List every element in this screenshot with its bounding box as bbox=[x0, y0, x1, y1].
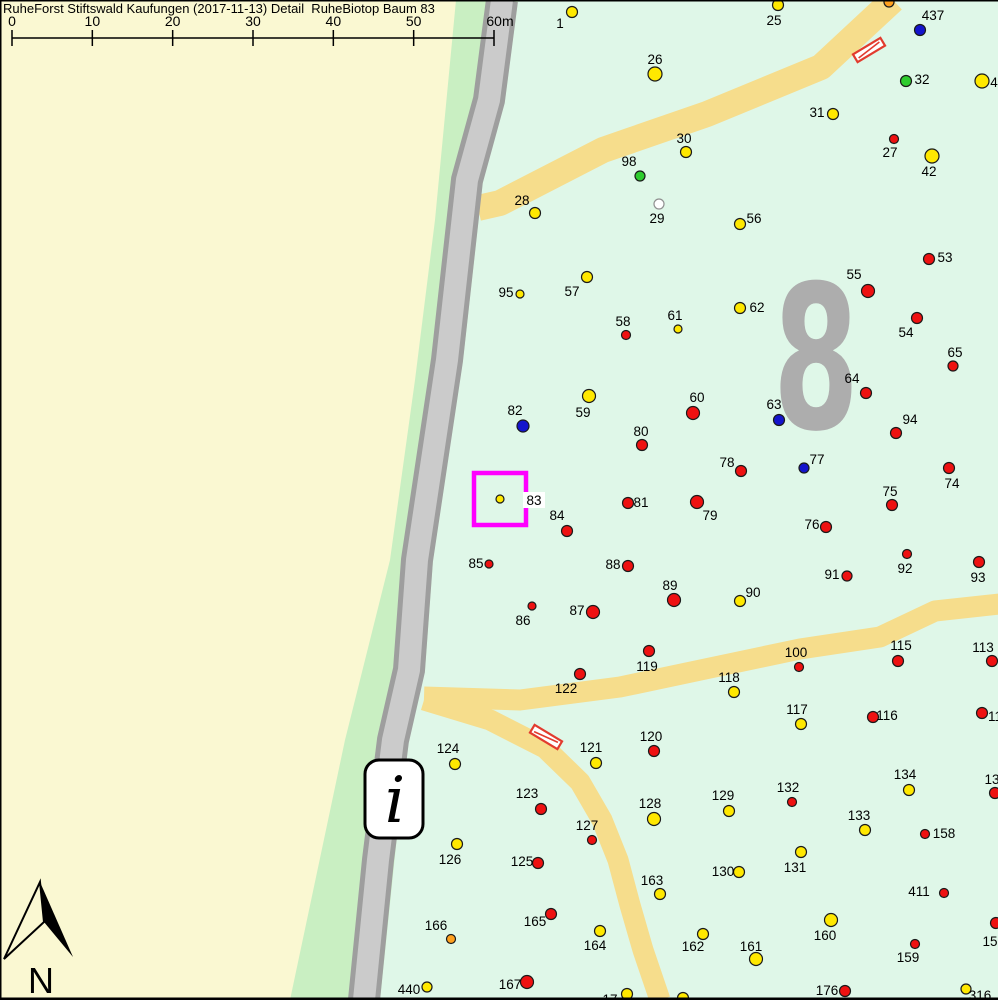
tree-dot bbox=[654, 199, 664, 209]
tree-label: 95 bbox=[498, 285, 513, 300]
tree-dot bbox=[485, 560, 493, 568]
tree-marker-176[interactable]: 176 bbox=[816, 983, 851, 998]
tree-dot bbox=[521, 976, 534, 989]
tree-label: 25 bbox=[766, 13, 781, 28]
tree-dot bbox=[567, 7, 578, 18]
tree-label: 88 bbox=[605, 557, 620, 572]
tree-label: 28 bbox=[514, 193, 529, 208]
tree-dot bbox=[862, 285, 875, 298]
tree-dot bbox=[735, 219, 746, 230]
tree-dot bbox=[901, 76, 912, 87]
tree-label: 60 bbox=[689, 390, 704, 405]
tree-label: 55 bbox=[846, 267, 861, 282]
tree-dot bbox=[796, 847, 807, 858]
tree-dot bbox=[582, 272, 593, 283]
tree-dot bbox=[828, 109, 839, 120]
tree-label: 80 bbox=[633, 424, 648, 439]
tree-dot bbox=[940, 889, 949, 898]
tree-dot bbox=[975, 74, 989, 88]
tree-dot bbox=[735, 596, 746, 607]
tree-label: 119 bbox=[636, 659, 658, 674]
tree-label: 83 bbox=[526, 493, 541, 508]
tree-label: 134 bbox=[894, 767, 917, 782]
tree-label: 126 bbox=[439, 852, 462, 867]
tree-dot bbox=[799, 463, 809, 473]
tree-marker-26[interactable]: 26 bbox=[647, 52, 662, 81]
tree-dot bbox=[861, 388, 872, 399]
tree-dot bbox=[447, 935, 456, 944]
tree-label: 167 bbox=[499, 977, 522, 992]
tree-dot bbox=[750, 953, 763, 966]
tree-label: 131 bbox=[784, 860, 807, 875]
tree-dot bbox=[674, 325, 682, 333]
tree-dot bbox=[528, 602, 536, 610]
north-label: N bbox=[28, 960, 54, 1000]
tree-label: 117 bbox=[786, 702, 808, 717]
tree-label: 63 bbox=[766, 397, 781, 412]
tree-label: 118 bbox=[718, 670, 740, 685]
tree-label: 13 bbox=[984, 772, 999, 787]
tree-dot bbox=[623, 498, 634, 509]
tree-dot bbox=[796, 719, 807, 730]
tree-dot bbox=[691, 496, 704, 509]
tree-label: 158 bbox=[933, 826, 956, 841]
tree-dot bbox=[648, 813, 661, 826]
tree-label: 74 bbox=[944, 476, 960, 491]
tree-label: 161 bbox=[740, 939, 763, 954]
tree-dot bbox=[825, 914, 838, 927]
tree-label: 122 bbox=[555, 681, 578, 696]
tree-label: 4 bbox=[990, 75, 998, 90]
tree-label: 1 bbox=[556, 16, 564, 31]
tree-dot bbox=[587, 606, 600, 619]
tree-label: 100 bbox=[785, 645, 808, 660]
tree-label: 62 bbox=[749, 300, 764, 315]
tree-label: 26 bbox=[647, 52, 662, 67]
tree-label: 124 bbox=[437, 741, 460, 756]
tree-marker-62[interactable]: 62 bbox=[735, 300, 765, 315]
tree-label: 15 bbox=[982, 934, 997, 949]
tree-dot bbox=[649, 746, 660, 757]
tree-marker-130[interactable]: 130 bbox=[712, 864, 745, 879]
tree-label: 64 bbox=[844, 371, 860, 386]
tree-dot bbox=[452, 839, 463, 850]
map-canvas[interactable]: 8 12543726324312730429828295653579555626… bbox=[0, 0, 1000, 1000]
info-icon: i bbox=[385, 764, 405, 838]
tree-label: 77 bbox=[809, 452, 824, 467]
tree-dot bbox=[774, 415, 785, 426]
tree-label: 61 bbox=[667, 308, 682, 323]
tree-label: 84 bbox=[549, 508, 565, 523]
tree-label: 76 bbox=[804, 517, 819, 532]
tree-dot bbox=[735, 303, 746, 314]
tree-label: 94 bbox=[902, 412, 918, 427]
tree-label: 132 bbox=[777, 780, 800, 795]
tree-label: 113 bbox=[972, 640, 994, 655]
tree-dot bbox=[562, 526, 573, 537]
tree-label: 115 bbox=[890, 638, 912, 653]
tree-label: 79 bbox=[702, 508, 717, 523]
tree-label: 82 bbox=[507, 403, 522, 418]
tree-label: 91 bbox=[824, 567, 839, 582]
tree-dot bbox=[736, 466, 747, 477]
tree-dot bbox=[681, 147, 692, 158]
tree-dot bbox=[987, 656, 998, 667]
tree-label: 90 bbox=[745, 585, 760, 600]
tree-dot bbox=[536, 804, 547, 815]
scale-tick-label: 60m bbox=[486, 13, 513, 29]
tree-dot bbox=[915, 25, 926, 36]
tree-dot bbox=[842, 571, 852, 581]
tree-label: 127 bbox=[576, 818, 599, 833]
tree-label: 27 bbox=[882, 145, 897, 160]
tree-dot bbox=[795, 663, 804, 672]
tree-dot bbox=[583, 390, 596, 403]
tree-dot bbox=[903, 550, 912, 559]
tree-dot bbox=[648, 67, 662, 81]
tree-dot bbox=[623, 561, 634, 572]
tree-dot bbox=[904, 785, 915, 796]
tree-label: 159 bbox=[897, 950, 920, 965]
tree-dot bbox=[773, 0, 784, 11]
tree-label: 78 bbox=[719, 455, 734, 470]
info-marker[interactable]: i bbox=[365, 760, 423, 838]
map-title: RuheForst Stiftswald Kaufungen (2017-11-… bbox=[3, 1, 435, 16]
tree-dot bbox=[925, 149, 939, 163]
tree-label: 130 bbox=[712, 864, 735, 879]
tree-label: 75 bbox=[882, 484, 897, 499]
tree-dot bbox=[622, 331, 631, 340]
tree-dot bbox=[533, 858, 544, 869]
tree-label: 32 bbox=[914, 72, 929, 87]
tree-dot bbox=[724, 806, 735, 817]
tree-dot bbox=[890, 135, 899, 144]
tree-label: 65 bbox=[947, 345, 962, 360]
tree-label: 165 bbox=[524, 914, 547, 929]
tree-label: 129 bbox=[712, 788, 735, 803]
tree-dot bbox=[635, 171, 645, 181]
tree-dot bbox=[911, 940, 920, 949]
tree-label: 116 bbox=[876, 708, 898, 723]
tree-dot bbox=[788, 798, 797, 807]
tree-dot bbox=[893, 656, 904, 667]
frame-left bbox=[0, 0, 2, 1000]
tree-label: 411 bbox=[908, 884, 930, 899]
tree-dot bbox=[921, 830, 930, 839]
tree-label: 176 bbox=[816, 983, 839, 998]
tree-dot bbox=[575, 669, 586, 680]
tree-dot bbox=[422, 982, 432, 992]
tree-label: 89 bbox=[662, 578, 677, 593]
tree-label: 160 bbox=[814, 928, 837, 943]
tree-dot bbox=[948, 361, 958, 371]
tree-label: 29 bbox=[649, 211, 664, 226]
tree-dot bbox=[944, 463, 955, 474]
tree-label: 163 bbox=[641, 873, 664, 888]
tree-dot bbox=[729, 687, 740, 698]
tree-dot bbox=[517, 420, 529, 432]
tree-label: 164 bbox=[584, 938, 607, 953]
tree-dot bbox=[637, 440, 648, 451]
tree-dot bbox=[644, 646, 655, 657]
tree-dot bbox=[516, 290, 524, 298]
tree-dot bbox=[840, 986, 851, 997]
tree-label: 30 bbox=[676, 131, 691, 146]
tree-dot bbox=[546, 909, 557, 920]
tree-label: 125 bbox=[511, 854, 534, 869]
tree-label: 54 bbox=[898, 325, 914, 340]
frame-top bbox=[0, 0, 1000, 2]
tree-label: 120 bbox=[640, 729, 663, 744]
tree-label: 57 bbox=[564, 284, 579, 299]
tree-label: 128 bbox=[639, 796, 662, 811]
tree-dot bbox=[974, 557, 985, 568]
tree-label: 123 bbox=[516, 786, 539, 801]
tree-label: 133 bbox=[848, 808, 871, 823]
tree-label: 58 bbox=[615, 314, 630, 329]
tree-label: 53 bbox=[937, 250, 952, 265]
tree-dot bbox=[591, 758, 602, 769]
tree-dot bbox=[655, 889, 666, 900]
tree-dot bbox=[891, 428, 902, 439]
map-viewport: 8 12543726324312730429828295653579555626… bbox=[0, 0, 1000, 1000]
tree-dot bbox=[530, 208, 541, 219]
tree-dot bbox=[588, 836, 597, 845]
tree-dot bbox=[734, 867, 745, 878]
tree-label: 56 bbox=[746, 211, 761, 226]
tree-label: 93 bbox=[970, 570, 985, 585]
tree-label: 98 bbox=[621, 154, 636, 169]
tree-label: 92 bbox=[897, 561, 912, 576]
tree-dot bbox=[887, 500, 898, 511]
tree-dot bbox=[687, 407, 700, 420]
tree-dot bbox=[821, 522, 832, 533]
tree-dot bbox=[595, 926, 606, 937]
tree-label: 437 bbox=[922, 8, 945, 23]
tree-label: 31 bbox=[809, 105, 824, 120]
tree-label: 81 bbox=[633, 495, 648, 510]
tree-dot bbox=[668, 594, 681, 607]
tree-dot bbox=[860, 825, 871, 836]
tree-label: 42 bbox=[921, 164, 936, 179]
tree-dot bbox=[450, 759, 461, 770]
tree-dot bbox=[912, 313, 923, 324]
tree-label: 166 bbox=[425, 918, 448, 933]
tree-dot bbox=[977, 708, 988, 719]
tree-label: 87 bbox=[569, 603, 584, 618]
tree-label: 162 bbox=[682, 939, 705, 954]
tree-label: 59 bbox=[575, 405, 590, 420]
tree-label: 85 bbox=[468, 556, 483, 571]
tree-label: 121 bbox=[580, 740, 603, 755]
tree-label: 86 bbox=[515, 613, 530, 628]
tree-dot bbox=[924, 254, 935, 265]
tree-label: 440 bbox=[398, 982, 421, 997]
tree-dot bbox=[496, 495, 504, 503]
